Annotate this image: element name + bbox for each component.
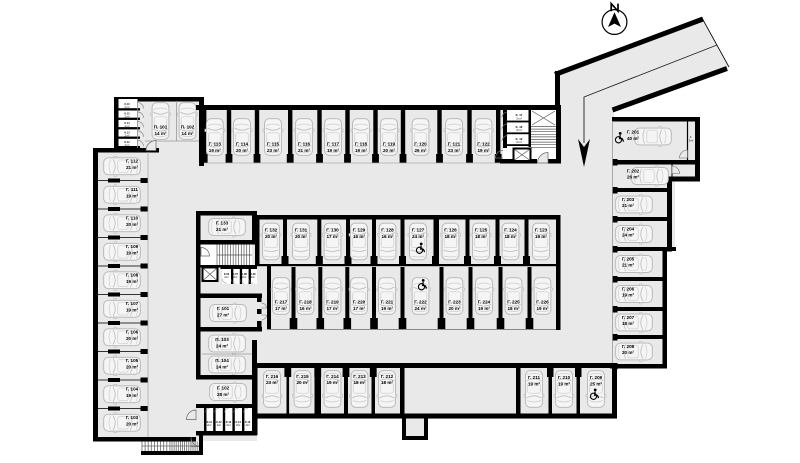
svg-text:17 m²: 17 m² [275,306,287,311]
svg-text:Γ. 202: Γ. 202 [627,168,640,173]
svg-text:2 m²: 2 m² [125,134,130,137]
svg-text:Γ. 128: Γ. 128 [381,228,394,233]
svg-text:Γ. 115: Γ. 115 [267,142,280,147]
svg-text:3 m²: 3 m² [516,116,522,120]
svg-text:20 m²: 20 m² [296,380,308,385]
svg-text:21 m²: 21 m² [622,263,634,268]
svg-text:21 m²: 21 m² [622,203,634,208]
svg-text:Γ. 124: Γ. 124 [504,228,517,233]
svg-text:Γ. 104: Γ. 104 [126,387,139,392]
svg-text:Γ. 122: Γ. 122 [477,142,490,147]
svg-text:23 m²: 23 m² [448,148,460,153]
svg-text:2m²: 2m² [242,276,246,279]
svg-text:Γ. 207: Γ. 207 [622,315,635,320]
svg-text:Γ. 130: Γ. 130 [326,228,339,233]
svg-text:2m²: 2m² [246,424,250,427]
svg-text:19 m²: 19 m² [478,306,490,311]
svg-text:Γ. 103: Γ. 103 [126,415,139,420]
svg-text:20 m²: 20 m² [383,148,395,153]
svg-text:Γ. 131: Γ. 131 [295,228,308,233]
svg-text:3 m²: 3 m² [516,140,522,144]
svg-text:27 m²: 27 m² [217,312,229,317]
svg-text:21 m²: 21 m² [126,165,138,170]
svg-text:26 m²: 26 m² [627,175,639,180]
svg-text:20 m²: 20 m² [265,234,277,239]
svg-text:Γ. 125: Γ. 125 [475,228,488,233]
svg-text:Γ. 203: Γ. 203 [622,197,635,202]
svg-text:Γ. 117: Γ. 117 [327,142,340,147]
svg-text:Γ. 213: Γ. 213 [353,374,366,379]
svg-text:20 m²: 20 m² [236,148,248,153]
svg-text:20 m²: 20 m² [295,234,307,239]
svg-text:21 m²: 21 m² [298,148,310,153]
svg-text:19 m²: 19 m² [558,381,570,386]
svg-text:Γ. 212: Γ. 212 [381,374,394,379]
svg-text:Γ. 226: Γ. 226 [536,300,549,305]
svg-text:Γ. 210: Γ. 210 [558,375,571,380]
svg-text:24 m²: 24 m² [216,364,228,369]
svg-text:Γ. 109: Γ. 109 [126,244,139,249]
svg-text:Π. 101: Π. 101 [154,125,168,130]
svg-text:19 m²: 19 m² [327,148,339,153]
svg-text:18 m²: 18 m² [475,234,487,239]
svg-text:24 m²: 24 m² [414,306,426,311]
svg-text:24 m²: 24 m² [622,233,634,238]
svg-text:2 m²: 2 m² [125,144,130,147]
svg-text:Γ. 119: Γ. 119 [383,142,396,147]
svg-text:20 m²: 20 m² [126,222,138,227]
svg-text:Γ. 209: Γ. 209 [590,375,603,380]
svg-text:20 m²: 20 m² [448,306,460,311]
svg-text:17 m²: 17 m² [353,306,365,311]
svg-text:Γ. 218: Γ. 218 [299,300,312,305]
svg-text:3m²: 3m² [689,138,694,142]
svg-text:17 m²: 17 m² [326,234,338,239]
svg-text:17 m²: 17 m² [326,306,338,311]
svg-text:Γ. 214: Γ. 214 [326,374,339,379]
svg-text:Γ. 116: Γ. 116 [298,142,311,147]
svg-text:Γ. 220: Γ. 220 [353,300,366,305]
svg-text:Γ. 208: Γ. 208 [622,344,635,349]
svg-text:19 m²: 19 m² [535,234,547,239]
svg-text:19 m²: 19 m² [126,279,138,284]
svg-text:2m²: 2m² [207,424,211,427]
svg-text:Γ. 211: Γ. 211 [528,375,541,380]
svg-text:2m²: 2m² [251,276,255,279]
svg-text:Γ. 225: Γ. 225 [507,300,520,305]
svg-text:Γ. 219: Γ. 219 [326,300,339,305]
svg-text:Κ.: Κ. [690,135,693,139]
svg-text:14 m²: 14 m² [181,131,193,136]
svg-text:Γ. 127: Γ. 127 [412,228,425,233]
svg-text:Γ. 110: Γ. 110 [126,216,139,221]
svg-text:16 m²: 16 m² [381,234,393,239]
svg-text:18 m²: 18 m² [504,234,516,239]
svg-text:2 m²: 2 m² [125,115,130,118]
svg-text:2m²: 2m² [236,424,240,427]
svg-text:Γ. 205: Γ. 205 [622,256,635,261]
svg-text:Γ. 105: Γ. 105 [126,358,139,363]
svg-text:Γ. 216: Γ. 216 [266,374,279,379]
svg-text:Γ. 221: Γ. 221 [381,300,394,305]
svg-text:19 m²: 19 m² [326,380,338,385]
svg-text:18 m²: 18 m² [353,380,365,385]
svg-text:19 m²: 19 m² [355,148,367,153]
svg-text:Γ. 215: Γ. 215 [296,374,309,379]
svg-text:19 m²: 19 m² [126,250,138,255]
svg-text:18 m²: 18 m² [507,306,519,311]
svg-text:19 m²: 19 m² [126,193,138,198]
svg-text:25 m²: 25 m² [590,381,602,386]
svg-text:Γ. 101: Γ. 101 [217,306,230,311]
svg-text:Γ. 118: Γ. 118 [355,142,368,147]
svg-text:21 m²: 21 m² [216,227,228,232]
svg-text:Γ. 123: Γ. 123 [535,228,548,233]
svg-text:19 m²: 19 m² [536,306,548,311]
svg-text:19 m²: 19 m² [381,306,393,311]
svg-text:2 m²: 2 m² [125,106,130,109]
svg-text:Γ. 222: Γ. 222 [414,300,427,305]
svg-text:Γ. 132: Γ. 132 [265,228,278,233]
svg-text:Γ. 114: Γ. 114 [236,142,249,147]
svg-text:14 m²: 14 m² [154,131,166,136]
svg-text:2m²: 2m² [224,276,228,279]
svg-text:20 m²: 20 m² [622,350,634,355]
svg-text:Γ. 133: Γ. 133 [216,221,229,226]
svg-text:20 m²: 20 m² [126,364,138,369]
svg-text:Γ. 107: Γ. 107 [126,301,139,306]
svg-text:Γ. 206: Γ. 206 [622,286,635,291]
svg-text:2m²: 2m² [217,424,221,427]
svg-text:16 m²: 16 m² [353,234,365,239]
svg-text:26 m²: 26 m² [414,148,426,153]
svg-text:Γ. 201: Γ. 201 [627,130,640,135]
svg-text:Γ. 111: Γ. 111 [126,187,138,192]
svg-text:Γ. 112: Γ. 112 [126,159,139,164]
svg-text:2m²: 2m² [233,276,237,279]
svg-text:Γ. 223: Γ. 223 [448,300,461,305]
svg-text:19 m²: 19 m² [126,307,138,312]
svg-text:19 m²: 19 m² [126,393,138,398]
svg-text:2m²: 2m² [226,424,230,427]
svg-text:19 m²: 19 m² [528,381,540,386]
svg-text:Γ. 102: Γ. 102 [217,386,230,391]
svg-text:18 m²: 18 m² [622,321,634,326]
svg-text:24 m²: 24 m² [216,343,228,348]
svg-text:2 m²: 2 m² [125,125,130,128]
svg-text:Γ. 126: Γ. 126 [444,228,457,233]
svg-text:Γ. 113: Γ. 113 [209,142,222,147]
svg-text:Γ. 224: Γ. 224 [478,300,491,305]
svg-text:18 m²: 18 m² [444,234,456,239]
svg-text:18 m²: 18 m² [381,380,393,385]
svg-text:Γ. 204: Γ. 204 [622,226,635,231]
svg-text:Γ. 217: Γ. 217 [275,300,288,305]
svg-text:Γ. 121: Γ. 121 [448,142,461,147]
svg-text:Π. 104: Π. 104 [215,358,229,363]
svg-text:20 m²: 20 m² [126,421,138,426]
svg-text:19 m²: 19 m² [477,148,489,153]
svg-text:Π. 102: Π. 102 [181,125,195,130]
svg-text:Γ. 108: Γ. 108 [126,273,139,278]
svg-text:19 m²: 19 m² [622,293,634,298]
svg-text:Γ. 120: Γ. 120 [414,142,427,147]
svg-text:24 m²: 24 m² [412,234,424,239]
svg-text:Γ. 129: Γ. 129 [353,228,366,233]
svg-text:3 m²: 3 m² [516,128,522,132]
svg-text:Π. 103: Π. 103 [215,337,229,342]
svg-text:19 m²: 19 m² [209,148,221,153]
svg-text:20 m²: 20 m² [126,336,138,341]
svg-text:Γ. 106: Γ. 106 [126,330,139,335]
svg-text:40 m²: 40 m² [627,136,639,141]
svg-text:23 m²: 23 m² [266,380,278,385]
svg-text:28 m²: 28 m² [217,392,229,397]
svg-text:23 m²: 23 m² [267,148,279,153]
svg-text:16 m²: 16 m² [299,306,311,311]
